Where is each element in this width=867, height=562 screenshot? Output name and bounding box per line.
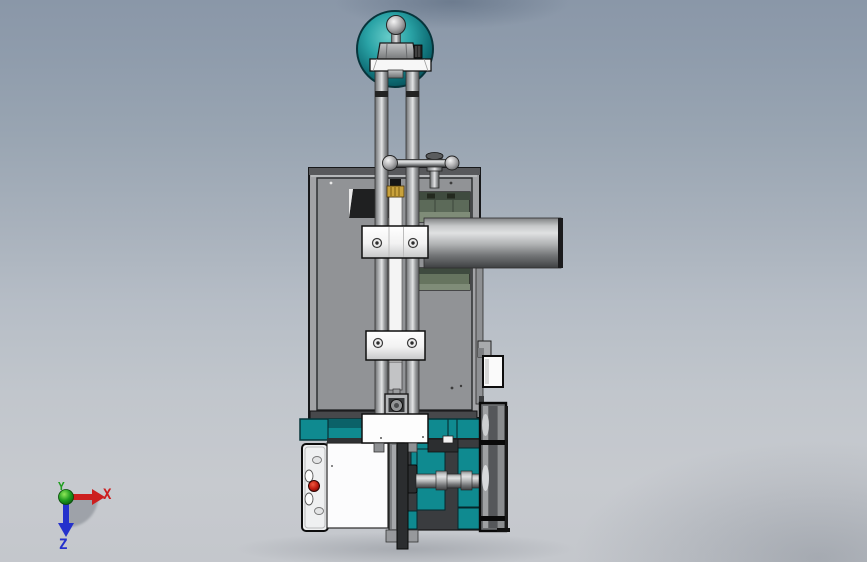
carriage-plate	[362, 414, 428, 443]
front-door-panel	[327, 443, 388, 528]
side-rail	[476, 268, 483, 404]
panel-button-lower[interactable]	[305, 493, 313, 505]
cad-3d-viewport[interactable]: Y X Z	[0, 0, 867, 562]
base-assembly	[300, 403, 510, 549]
side-knob	[414, 45, 422, 58]
x-axis-label: X	[103, 487, 112, 503]
corner-shadow	[573, 440, 867, 562]
z-axis-label: Z	[59, 537, 67, 553]
origin-triad: Y X Z	[58, 480, 112, 553]
panel-button-top[interactable]	[313, 457, 322, 464]
panel-button-bottom[interactable]	[315, 508, 324, 515]
panel-button-upper[interactable]	[305, 470, 313, 482]
y-axis-label: Y	[58, 480, 65, 493]
upper-rod-clamp	[362, 226, 428, 258]
control-panel	[302, 444, 328, 531]
lower-rod-clamp	[366, 331, 425, 360]
side-frame	[480, 403, 510, 532]
clevis-roller	[385, 394, 408, 415]
emergency-stop-button[interactable]	[309, 481, 320, 492]
side-cylinder	[424, 218, 563, 268]
assembly-render: Y X Z	[0, 0, 867, 562]
